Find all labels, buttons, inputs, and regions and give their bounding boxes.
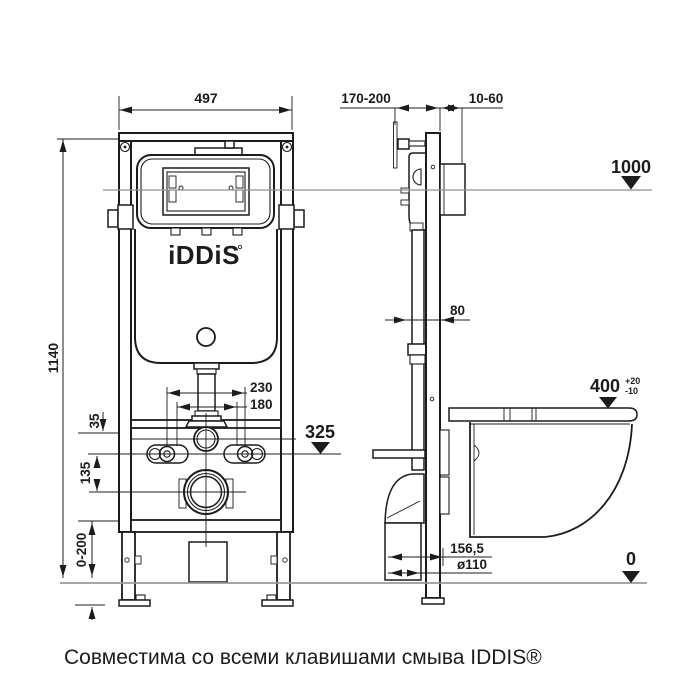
dim-outlet-offset: 156,5 (450, 541, 484, 556)
outlet-channel-side (385, 523, 421, 580)
support-shelf (373, 450, 425, 458)
level-drain-325: 325 (305, 422, 335, 442)
level-seat-400: 400 (590, 376, 620, 396)
dim-front-width: 497 (194, 90, 218, 106)
level-seat-tol-plus: +20 (625, 376, 640, 386)
toilet-bowl-side (440, 408, 637, 537)
level-button-1000: 1000 (611, 157, 651, 177)
dim-profile-width: 80 (450, 303, 465, 318)
level-floor-0: 0 (626, 549, 636, 569)
dim-leg-adjust-range: 0-200 (74, 533, 89, 568)
outlet-bend (385, 474, 424, 580)
dim-outlet-diameter: ø110 (457, 557, 487, 572)
cistern: iDDiS (135, 229, 277, 363)
dim-wall-gap: 10-60 (469, 91, 504, 106)
level-marker-325 (311, 442, 330, 454)
inspection-window (108, 141, 304, 235)
compatibility-caption: Совместима со всеми клавишами смыва IDDI… (64, 646, 542, 669)
level-marker-1000 (621, 176, 641, 190)
front-view: iDDiS (88, 133, 341, 606)
cistern-profile (401, 153, 426, 237)
dim-front-height: 1140 (45, 343, 61, 374)
toilet-seat (449, 408, 637, 421)
side-view (373, 122, 637, 604)
brand-logo: iDDiS (168, 240, 240, 270)
level-marker-0 (622, 571, 640, 583)
dim-bolt-spacing-inner: 180 (250, 397, 273, 412)
flush-pipe-front (186, 363, 227, 427)
flush-pipe-side (408, 230, 427, 470)
bowl-body (470, 422, 632, 537)
level-seat-tol-minus: -10 (625, 386, 638, 396)
level-marker-400 (599, 397, 617, 409)
outlet-channel-front (189, 542, 227, 582)
dim-bolt-spacing-outer: 230 (250, 380, 273, 395)
dim-offset-135: 135 (78, 461, 93, 484)
dim-depth-range: 170-200 (341, 91, 391, 106)
installation-frame-technical-drawing: iDDiS (0, 0, 700, 700)
dim-offset-35: 35 (87, 413, 102, 429)
